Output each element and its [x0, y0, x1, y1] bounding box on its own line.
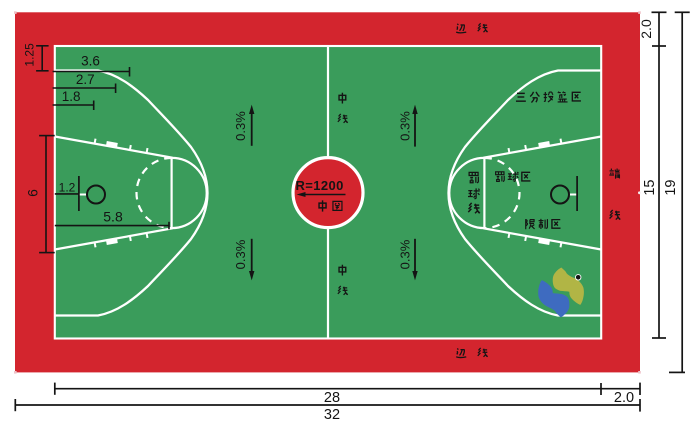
svg-text:15: 15: [642, 180, 658, 196]
svg-text:1.25: 1.25: [23, 43, 37, 67]
svg-text:2.7: 2.7: [76, 72, 95, 87]
svg-text:0.3%: 0.3%: [233, 239, 248, 269]
svg-text:28: 28: [324, 390, 340, 406]
svg-text:5.8: 5.8: [103, 209, 123, 225]
svg-text:2.0: 2.0: [614, 390, 634, 406]
svg-text:0.3%: 0.3%: [397, 111, 412, 141]
svg-text:32: 32: [324, 407, 340, 423]
svg-text:0.3%: 0.3%: [233, 111, 248, 141]
svg-text:19: 19: [663, 180, 679, 196]
svg-text:6: 6: [25, 189, 41, 197]
svg-text:R=1200: R=1200: [296, 178, 344, 193]
svg-text:3.6: 3.6: [81, 54, 100, 69]
svg-text:1.8: 1.8: [62, 89, 81, 104]
svg-text:0.3%: 0.3%: [397, 239, 412, 269]
svg-text:1.2: 1.2: [59, 181, 76, 195]
svg-text:2.0: 2.0: [638, 19, 654, 39]
